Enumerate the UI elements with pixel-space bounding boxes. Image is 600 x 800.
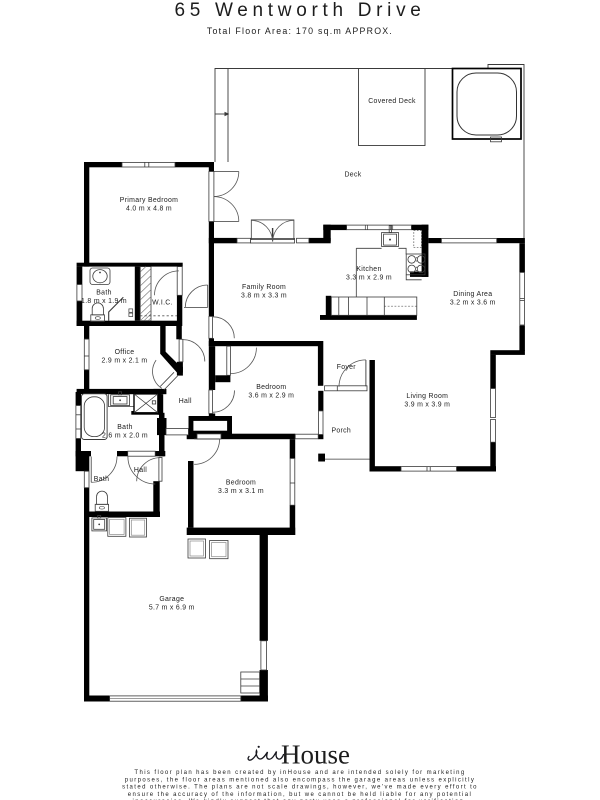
svg-text:ensure the accuracy of the inf: ensure the accuracy of the information, …	[128, 792, 473, 798]
svg-text:3.6 m x 2.9 m: 3.6 m x 2.9 m	[248, 392, 294, 399]
svg-text:Hall: Hall	[179, 398, 192, 405]
svg-text:2.6 m x 2.0 m: 2.6 m x 2.0 m	[102, 433, 148, 440]
svg-text:Primary Bedroom: Primary Bedroom	[120, 197, 178, 204]
svg-text:3.3 m x 2.9 m: 3.3 m x 2.9 m	[346, 275, 392, 282]
svg-text:Foyer: Foyer	[337, 364, 357, 371]
svg-text:This floor plan has been creat: This floor plan has been created by inHo…	[134, 770, 465, 776]
svg-text:Porch: Porch	[331, 428, 351, 435]
svg-text:Bath: Bath	[96, 290, 111, 297]
svg-text:Hall: Hall	[134, 467, 147, 474]
svg-text:Living Room: Living Room	[406, 393, 448, 400]
svg-text:65 Wentworth Drive: 65 Wentworth Drive	[174, 0, 425, 21]
svg-text:Covered Deck: Covered Deck	[368, 98, 416, 105]
svg-text:Bath: Bath	[117, 424, 132, 431]
svg-text:Deck: Deck	[345, 172, 362, 179]
svg-text:House: House	[281, 740, 350, 770]
svg-text:Kitchen: Kitchen	[356, 266, 381, 273]
svg-text:3.9 m x 3.9 m: 3.9 m x 3.9 m	[404, 402, 450, 409]
svg-text:2.9 m x 2.1 m: 2.9 m x 2.1 m	[102, 358, 148, 365]
svg-text:4.0 m x 4.8 m: 4.0 m x 4.8 m	[126, 206, 172, 213]
svg-text:3.8 m x 3.3 m: 3.8 m x 3.3 m	[241, 293, 287, 300]
svg-text:3.2 m x 3.6 m: 3.2 m x 3.6 m	[450, 300, 496, 307]
svg-text:Total Floor Area: 170 sq.m APP: Total Floor Area: 170 sq.m APPROX.	[207, 26, 393, 36]
svg-text:3.3 m x 3.1 m: 3.3 m x 3.1 m	[218, 488, 264, 495]
svg-text:Dining Area: Dining Area	[453, 291, 492, 298]
svg-text:1.8 m x 1.9 m: 1.8 m x 1.9 m	[81, 298, 127, 305]
svg-text:Garage: Garage	[159, 596, 184, 603]
svg-text:Bedroom: Bedroom	[256, 384, 286, 391]
svg-text:Bedroom: Bedroom	[226, 479, 256, 486]
svg-text:W.I.C.: W.I.C.	[152, 300, 173, 307]
svg-text:5.7 m x 6.9 m: 5.7 m x 6.9 m	[149, 605, 195, 612]
svg-text:Bath: Bath	[94, 476, 109, 483]
svg-text:purposes, the floor areas ment: purposes, the floor areas mentioned also…	[125, 777, 475, 783]
svg-text:stated otherwise. The plans ar: stated otherwise. The plans are not scal…	[122, 785, 478, 791]
svg-text:Office: Office	[115, 349, 135, 356]
svg-text:Family Room: Family Room	[242, 284, 286, 291]
